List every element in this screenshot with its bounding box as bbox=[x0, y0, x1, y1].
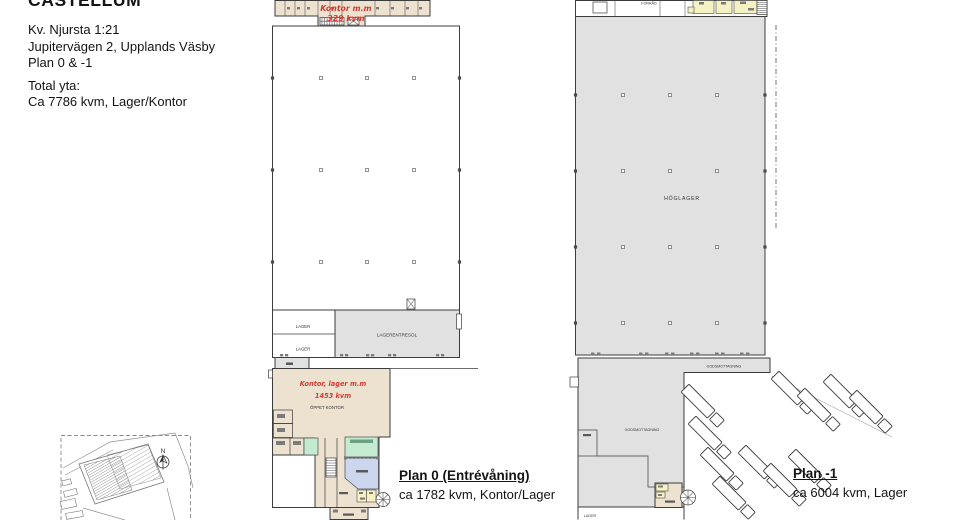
floorplan-plan-minus1: FÖRRÅD HÖGLAGER bbox=[560, 0, 940, 520]
planm1-hoglager-hall: HÖGLAGER bbox=[574, 17, 776, 356]
room-label-lager-b: LAGER bbox=[296, 347, 311, 352]
room-label-lager: LAGER bbox=[584, 514, 597, 518]
plan0-top-office-strip: Kontor m.m 329 kvm bbox=[275, 1, 430, 27]
plans-line: Plan 0 & -1 bbox=[28, 55, 215, 72]
plan-minus1-caption-detail: ca 6004 kvm, Lager bbox=[793, 485, 907, 500]
spiral-stair bbox=[681, 490, 696, 505]
entrance-vestibule bbox=[330, 508, 368, 520]
shaft-symbol bbox=[407, 299, 415, 309]
plan0-main-hall bbox=[271, 26, 461, 310]
total-area-label: Total yta: bbox=[28, 78, 215, 95]
brand-logo: CASTELLUM bbox=[28, 0, 215, 11]
room-label-oppet-kontor: ÖPPET KONTOR bbox=[310, 405, 344, 410]
plan0-office-note-line2: 1453 kvm bbox=[315, 392, 351, 400]
room-label-gods-hall: GODSMOTTAGNING bbox=[625, 428, 660, 432]
address-line: Jupitervägen 2, Upplands Väsby bbox=[28, 39, 215, 56]
plan0-top-note-line1: Kontor m.m bbox=[320, 4, 371, 13]
property-line: Kv. Njursta 1:21 bbox=[28, 22, 215, 39]
site-buildings bbox=[60, 444, 164, 519]
garage-room bbox=[273, 455, 316, 508]
room-label-lagerentresol: LAGERENTRESOL bbox=[377, 333, 418, 338]
door-left bbox=[269, 370, 273, 378]
room-label-lager-a: LAGER bbox=[296, 324, 311, 329]
plan0-top-note-line2: 329 kvm bbox=[327, 14, 364, 23]
spiral-stair bbox=[376, 493, 390, 507]
north-label: N bbox=[161, 448, 166, 455]
plan0-caption: Plan 0 (Entrévåning) ca 1782 kvm, Kontor… bbox=[399, 468, 555, 502]
stair-symbol-right bbox=[757, 1, 767, 15]
floorplan-plan0: Kontor m.m 329 kvm LAGER LAGER LAGERENTR… bbox=[260, 0, 490, 520]
site-plan: N bbox=[55, 428, 195, 520]
plan0-caption-title: Plan 0 (Entrévåning) bbox=[399, 468, 555, 483]
room-label-hoglager: HÖGLAGER bbox=[664, 195, 700, 202]
plan0-office-note-line1: Kontor, lager m.m bbox=[300, 380, 367, 388]
plan0-caption-detail: ca 1782 kvm, Kontor/Lager bbox=[399, 487, 555, 502]
plan0-entresol: LAGER LAGER LAGERENTRESOL bbox=[273, 310, 462, 371]
floorplan-sheet: { "header": { "brand": "CASTELLUM", "pro… bbox=[0, 0, 976, 520]
door-left bbox=[570, 377, 579, 387]
total-area-value: Ca 7786 kvm, Lager/Kontor bbox=[28, 94, 215, 111]
room-label-forrad: FÖRRÅD bbox=[641, 1, 657, 6]
plan-minus1-caption-title: Plan -1 bbox=[793, 466, 907, 481]
stair-room bbox=[655, 483, 682, 508]
room-label-gods-dock: GODSMOTTAGNING bbox=[707, 365, 742, 369]
wc-rooms bbox=[357, 490, 376, 502]
conference-room-green bbox=[345, 437, 378, 457]
plan-minus1-caption: Plan -1 ca 6004 kvm, Lager bbox=[793, 466, 907, 500]
header: CASTELLUM Kv. Njursta 1:21 Jupitervägen … bbox=[28, 0, 215, 111]
wet-rooms bbox=[688, 1, 757, 14]
planm1-godsmottagning-area: GODSMOTTAGNING GODSMOTTAGNING LAGER bbox=[570, 358, 770, 520]
plan0-office-block: Kontor, lager m.m 1453 kvm ÖPPET KONTOR bbox=[269, 369, 391, 520]
north-arrow-icon: N bbox=[157, 448, 169, 470]
